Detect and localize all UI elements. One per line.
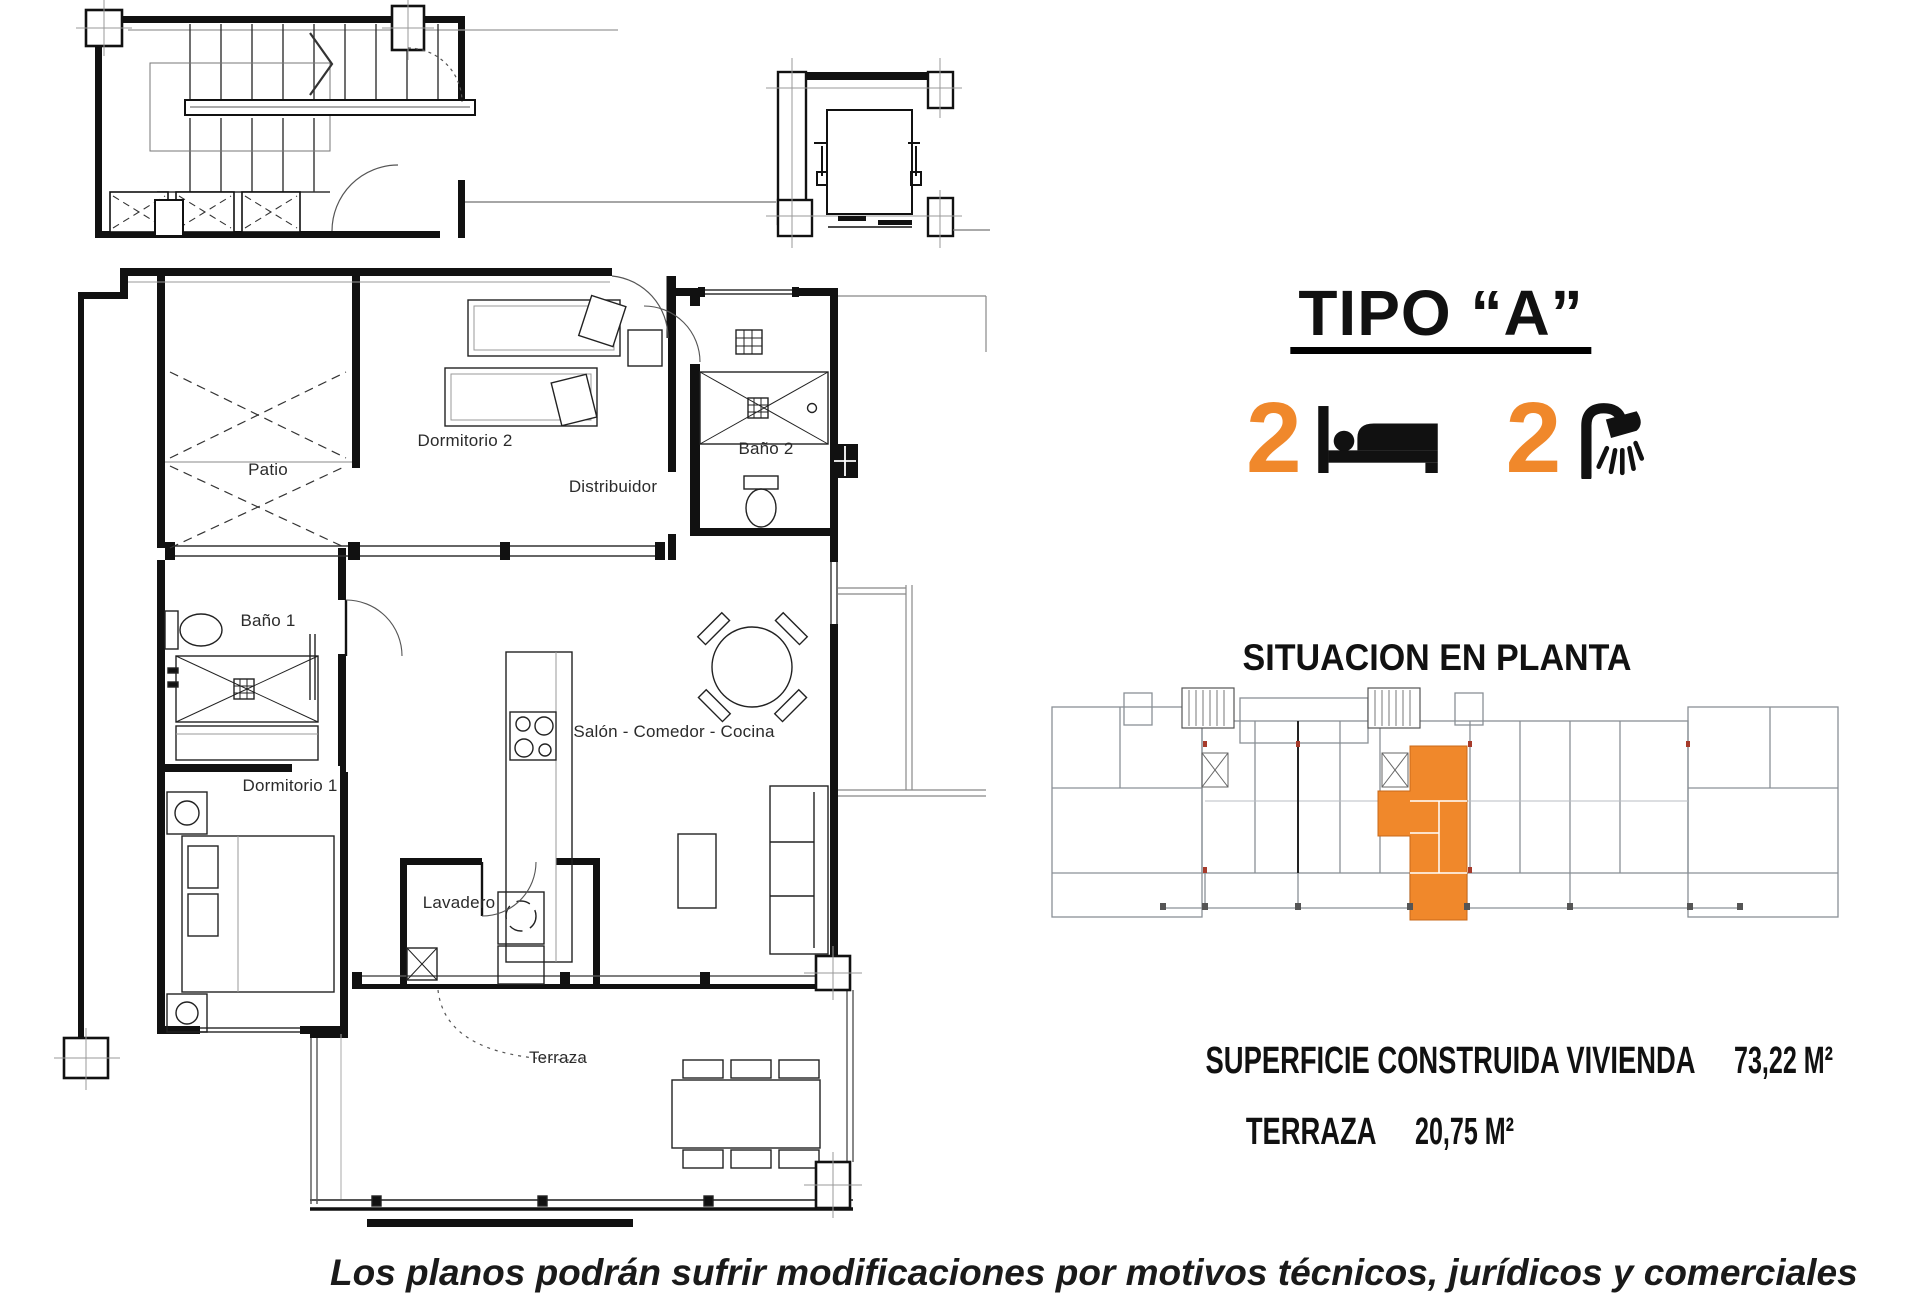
area-value-vivienda: 73,22 M² (1734, 1040, 1833, 1083)
room-label-bano2: Baño 2 (738, 439, 793, 459)
disclaimer-text: Los planos podrán sufrir modificaciones … (330, 1252, 1480, 1294)
room-label-distribuidor: Distribuidor (569, 477, 657, 497)
room-label-dormitorio1: Dormitorio 1 (243, 776, 338, 796)
mini-location-plan (1040, 683, 1850, 948)
room-label-salon: Salón - Comedor - Cocina (573, 722, 774, 742)
laundry-fixtures (407, 862, 544, 984)
bathrooms-feature: 2 (1506, 396, 1646, 481)
shower-icon (1577, 399, 1645, 479)
area-value-terraza: 20,75 M² (1415, 1111, 1514, 1154)
floor-plan-drawing (0, 0, 1000, 1280)
elevator (766, 58, 990, 248)
area-figures: SUPERFICIE CONSTRUIDA VIVIENDA 73,22 M² … (1015, 1040, 1555, 1182)
room-label-bano1: Baño 1 (240, 611, 295, 631)
features-row: 2 2 (1246, 396, 1645, 481)
bed-icon (1318, 405, 1438, 473)
room-label-lavadero: Lavadero (423, 893, 496, 913)
page-title: TIPO “A” (1290, 281, 1591, 354)
room-label-patio: Patio (248, 460, 288, 480)
bedroom1-furniture (167, 792, 334, 1032)
bedrooms-feature: 2 (1246, 396, 1438, 481)
bathrooms-count: 2 (1506, 396, 1562, 481)
brochure-page: Patio Dormitorio 2 Baño 2 Distribuidor B… (0, 0, 1920, 1280)
terrace (310, 990, 853, 1227)
situacion-title: SITUACION EN PLANTA (1243, 637, 1632, 679)
apartment-walls (78, 268, 838, 1046)
area-row-vivienda: SUPERFICIE CONSTRUIDA VIVIENDA 73,22 M² (1015, 1040, 1555, 1083)
living-kitchen-furniture (506, 613, 828, 962)
windows (128, 282, 838, 1034)
highlighted-unit (1378, 746, 1467, 920)
area-label-terraza: TERRAZA (1246, 1111, 1377, 1154)
bedroom2-furniture (445, 296, 662, 426)
stairwell (76, 0, 776, 238)
room-label-dormitorio2: Dormitorio 2 (418, 431, 513, 451)
bedrooms-count: 2 (1246, 396, 1302, 481)
context-fragments (838, 296, 986, 796)
room-label-terraza: Terraza (529, 1048, 587, 1068)
area-label-vivienda: SUPERFICIE CONSTRUIDA VIVIENDA (1206, 1040, 1696, 1083)
area-row-terraza: TERRAZA 20,75 M² (1015, 1111, 1555, 1154)
